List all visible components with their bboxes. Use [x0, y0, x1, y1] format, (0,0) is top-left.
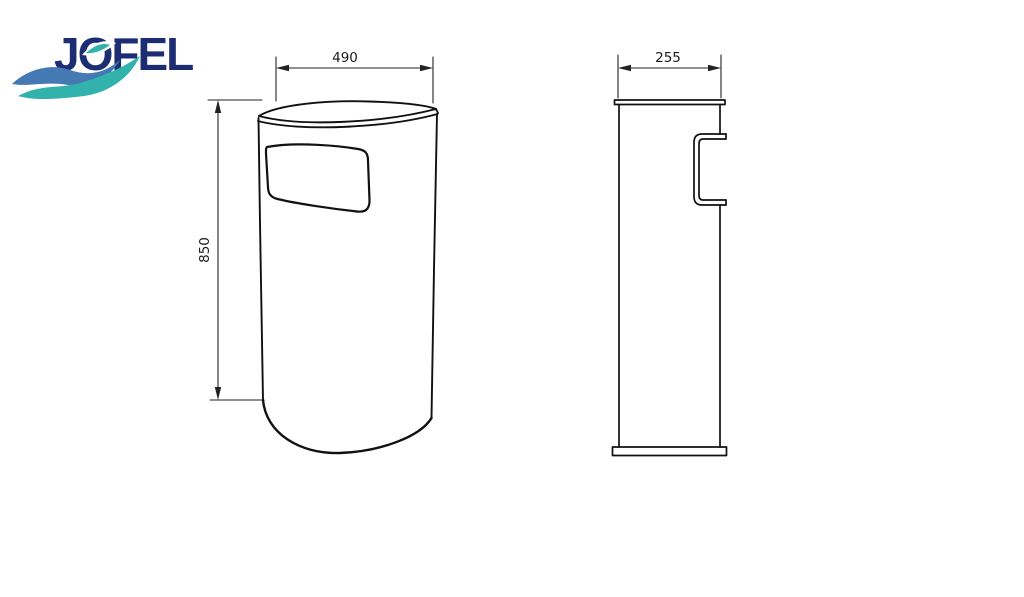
side-lid-bar [615, 100, 726, 105]
side-flap-handle [694, 134, 726, 205]
waste-opening [266, 144, 370, 211]
arrow-right-icon [708, 65, 721, 71]
bin-side-outline [613, 100, 727, 456]
front-view: 490 850 [197, 50, 438, 453]
arrow-left-icon [276, 65, 289, 71]
body-left-edge [259, 118, 264, 400]
front-height-dimension [208, 100, 264, 400]
arrow-right-icon [420, 65, 433, 71]
body-right-edge [432, 114, 438, 418]
bin-front-outline [258, 101, 438, 453]
arrow-left-icon [618, 65, 631, 71]
body-bottom-curve [263, 400, 432, 453]
technical-drawing: 490 850 [0, 0, 1024, 597]
product-drawing-page: JOFEL [0, 0, 1024, 597]
arrow-up-icon [215, 100, 221, 113]
side-view: 255 [613, 50, 727, 456]
side-base-plate [613, 447, 727, 456]
front-height-value: 850 [197, 237, 213, 263]
drawing-svg: 490 850 [0, 0, 1024, 597]
front-width-value: 490 [332, 50, 358, 66]
arrow-down-icon [215, 387, 221, 400]
side-depth-value: 255 [655, 50, 681, 66]
